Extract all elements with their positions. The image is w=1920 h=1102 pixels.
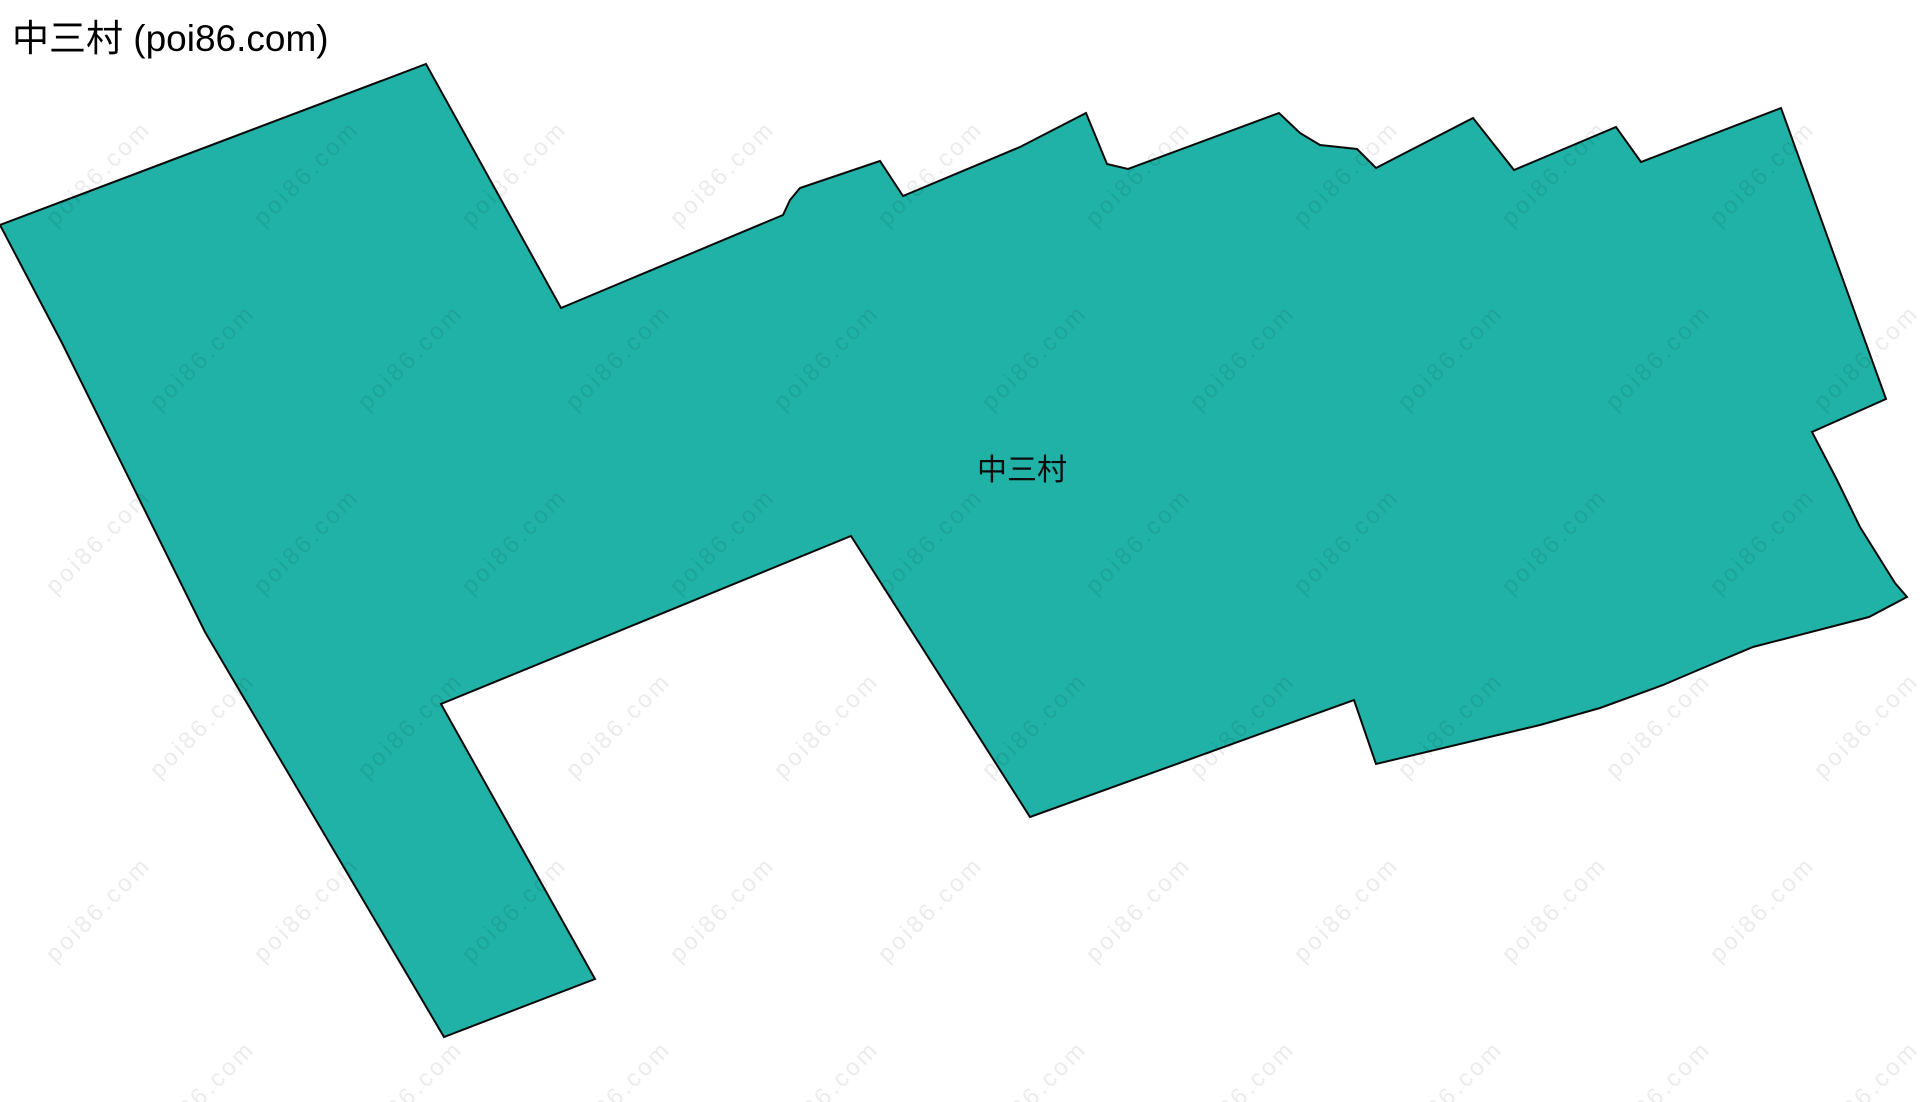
region-label: 中三村 [977,445,1067,489]
village-boundary-map [0,0,1920,1102]
page-title: 中三村 (poi86.com) [12,8,329,62]
map-page: poi86.compoi86.compoi86.compoi86.compoi8… [0,0,1920,1102]
village-polygon [0,64,1907,1037]
